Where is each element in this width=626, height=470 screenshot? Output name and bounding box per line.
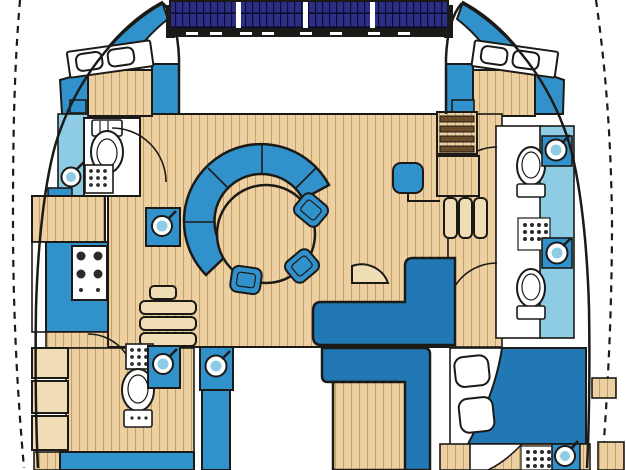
step — [459, 198, 472, 238]
toilet-bowl — [517, 147, 545, 185]
pillow — [480, 45, 508, 65]
solar-panel-array — [166, 1, 453, 38]
pillow — [75, 51, 103, 71]
shower-drain — [130, 348, 148, 366]
step — [140, 301, 196, 314]
catamaran-floor-plan — [0, 0, 626, 470]
port-berth-floor — [88, 70, 152, 116]
step — [474, 198, 487, 238]
berth-floor — [473, 70, 535, 116]
port-lifeline — [13, 0, 24, 468]
dining-chair — [229, 265, 262, 295]
hull-step — [32, 348, 68, 378]
gunwale-trim — [598, 442, 624, 470]
pillow — [453, 354, 490, 387]
step — [444, 198, 457, 238]
shower-drain — [89, 169, 107, 187]
floor-plan-canvas — [0, 0, 626, 470]
starboard-aft-cabin — [440, 348, 624, 470]
port-aft-head — [32, 334, 194, 470]
hull-step — [32, 381, 68, 413]
side-bench — [202, 390, 230, 470]
port-aft-berth — [60, 452, 194, 470]
port-berth-rail-inner — [152, 64, 179, 114]
locker — [437, 156, 479, 196]
pillow — [107, 47, 135, 67]
toilet-tank — [517, 306, 545, 319]
toilet-bowl — [517, 269, 545, 307]
cockpit-table — [333, 382, 405, 470]
salon-dinette — [184, 144, 331, 295]
step — [140, 317, 196, 330]
toilet-tank — [517, 184, 545, 197]
step — [150, 286, 176, 299]
pillow — [458, 396, 495, 433]
aft-cockpit — [200, 347, 430, 470]
solar-panels — [170, 1, 448, 29]
gunwale-trim — [592, 378, 616, 398]
nav-seat — [393, 163, 423, 193]
